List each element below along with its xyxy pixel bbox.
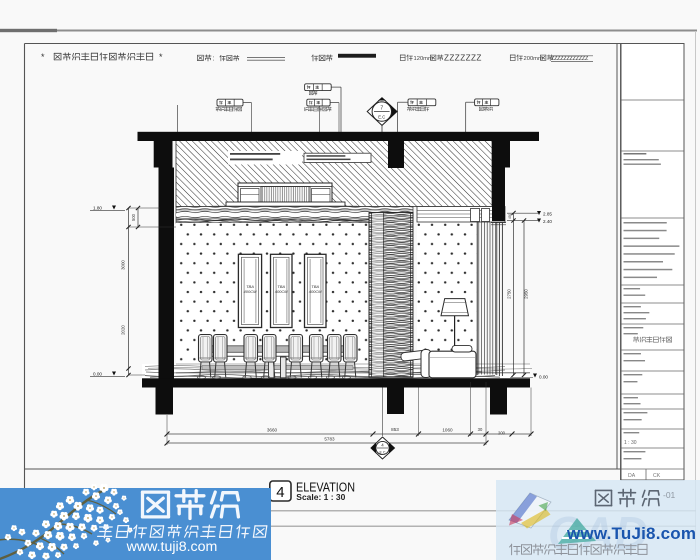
svg-text:www.tuji8.com: www.tuji8.com bbox=[126, 539, 218, 555]
svg-text::: : bbox=[213, 56, 215, 63]
svg-text:7: 7 bbox=[380, 106, 383, 112]
svg-text:*: * bbox=[41, 52, 45, 62]
svg-text:CK: CK bbox=[653, 473, 661, 479]
svg-text:3660: 3660 bbox=[267, 428, 278, 433]
svg-text:1 : 30: 1 : 30 bbox=[624, 440, 637, 446]
svg-text:E.C: E.C bbox=[380, 450, 386, 454]
svg-text:E.C: E.C bbox=[378, 114, 385, 119]
svg-text:Scale: 1 : 30: Scale: 1 : 30 bbox=[296, 493, 346, 502]
svg-text:5783: 5783 bbox=[324, 437, 335, 442]
svg-text:2020: 2020 bbox=[121, 325, 126, 335]
svg-text:2950: 2950 bbox=[524, 289, 529, 299]
svg-text:4: 4 bbox=[276, 484, 284, 501]
svg-text:1.80: 1.80 bbox=[93, 206, 102, 211]
svg-text:500: 500 bbox=[131, 213, 136, 221]
svg-text:ZZZZZZZ: ZZZZZZZ bbox=[444, 54, 482, 63]
svg-text:2750: 2750 bbox=[507, 289, 512, 299]
svg-text:450: 450 bbox=[508, 214, 512, 220]
svg-text:2.85: 2.85 bbox=[543, 212, 552, 217]
svg-text:www.TuJi8.com: www.TuJi8.com bbox=[566, 524, 696, 543]
svg-text:30: 30 bbox=[478, 427, 483, 432]
svg-text:400CM: 400CM bbox=[309, 289, 323, 294]
svg-text:400CM: 400CM bbox=[244, 289, 258, 294]
svg-text:*: * bbox=[159, 52, 163, 62]
svg-text:DA: DA bbox=[628, 473, 636, 479]
svg-text:0.00: 0.00 bbox=[539, 375, 548, 380]
svg-text:-01: -01 bbox=[663, 490, 676, 500]
svg-text:0.00: 0.00 bbox=[93, 372, 102, 377]
svg-text:400CM: 400CM bbox=[275, 289, 289, 294]
svg-text:200: 200 bbox=[498, 431, 506, 436]
svg-text:2.40: 2.40 bbox=[543, 219, 552, 224]
svg-text:3000: 3000 bbox=[121, 260, 126, 270]
svg-text:120mm: 120mm bbox=[414, 56, 434, 62]
svg-text:853: 853 bbox=[391, 427, 399, 432]
svg-text:1060: 1060 bbox=[442, 428, 453, 433]
svg-text:200mm: 200mm bbox=[524, 56, 544, 62]
